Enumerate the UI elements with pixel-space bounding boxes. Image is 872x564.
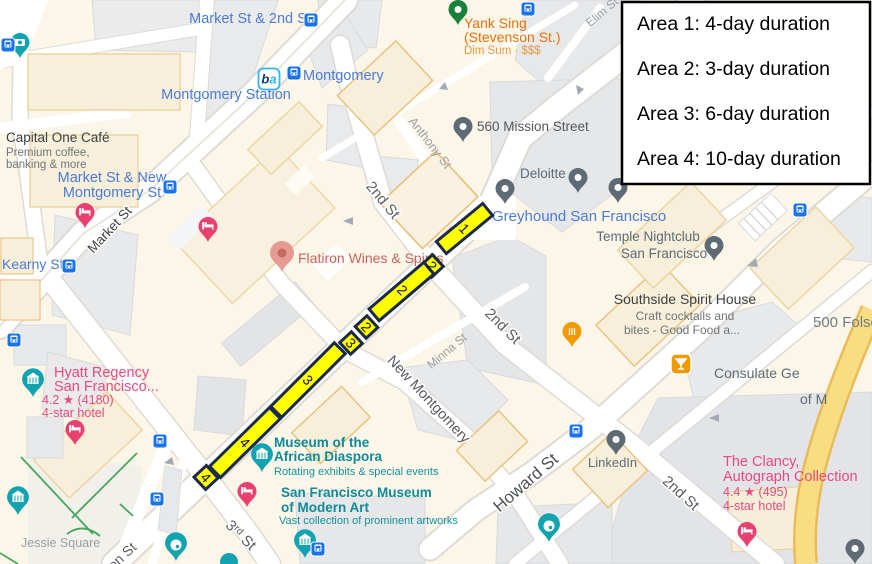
svg-text:Autograph Collection: Autograph Collection [723, 469, 858, 485]
svg-text:Deloitte: Deloitte [520, 166, 566, 181]
svg-text:ba: ba [261, 72, 276, 87]
svg-text:Montgomery St: Montgomery St [63, 185, 161, 201]
svg-text:Southside Spirit House: Southside Spirit House [614, 291, 757, 307]
svg-text:LinkedIn: LinkedIn [588, 455, 637, 470]
svg-text:4-star hotel: 4-star hotel [723, 499, 786, 513]
svg-text:4.4 ★ (495): 4.4 ★ (495) [723, 485, 788, 499]
svg-text:African Diaspora: African Diaspora [274, 449, 383, 464]
svg-text:Greyhound San Francisco: Greyhound San Francisco [492, 208, 666, 225]
svg-text:San Francisco: San Francisco [621, 246, 707, 261]
svg-text:Market St & New: Market St & New [58, 170, 167, 186]
svg-text:Temple Nightclub: Temple Nightclub [596, 229, 700, 244]
svg-text:Rotating exhibits & special ev: Rotating exhibits & special events [274, 466, 439, 478]
svg-text:Museum of the: Museum of the [274, 435, 370, 450]
svg-text:of M: of M [800, 391, 827, 407]
svg-text:Area 4: 10-day duration: Area 4: 10-day duration [637, 148, 841, 170]
svg-text:Dim Sum · $$$: Dim Sum · $$$ [464, 45, 541, 57]
svg-text:San Francisco Museum: San Francisco Museum [281, 485, 432, 500]
svg-text:4.2 ★ (4180): 4.2 ★ (4180) [42, 393, 114, 407]
svg-text:4-star hotel: 4-star hotel [42, 406, 105, 420]
svg-text:Montgomery: Montgomery [303, 68, 384, 84]
svg-text:banking & more: banking & more [6, 159, 87, 171]
svg-text:Area 2: 3-day duration: Area 2: 3-day duration [637, 58, 830, 80]
svg-text:Premium coffee,: Premium coffee, [6, 147, 90, 159]
svg-text:500 Folsom: 500 Folsom [813, 314, 872, 331]
svg-text:Consulate Ge: Consulate Ge [714, 365, 800, 381]
svg-text:Jessie Square: Jessie Square [21, 536, 100, 550]
svg-text:of Modern Art: of Modern Art [281, 500, 369, 515]
svg-text:Area 3: 6-day duration: Area 3: 6-day duration [637, 103, 830, 125]
svg-text:The Clancy,: The Clancy, [723, 454, 799, 470]
svg-text:Craft cocktails and: Craft cocktails and [636, 309, 735, 323]
svg-text:Market St & 2nd St: Market St & 2nd St [189, 11, 311, 27]
svg-text:Capital One Café: Capital One Café [6, 130, 110, 145]
svg-text:Kearny St: Kearny St [2, 256, 64, 272]
svg-text:(Stevenson St.): (Stevenson St.) [464, 29, 561, 45]
svg-text:Area 1: 4-day duration: Area 1: 4-day duration [637, 13, 830, 35]
svg-text:bites - Good Food a...: bites - Good Food a... [624, 323, 740, 337]
svg-text:560 Mission Street: 560 Mission Street [477, 119, 589, 134]
svg-text:Vast collection of prominent a: Vast collection of prominent artworks [279, 515, 458, 527]
